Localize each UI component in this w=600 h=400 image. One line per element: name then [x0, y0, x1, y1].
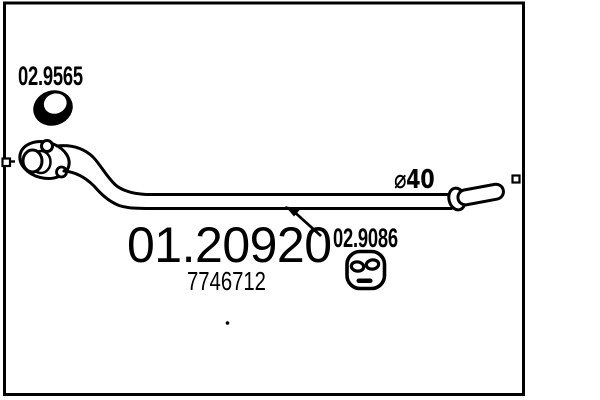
- gasket-part-label: 02.9565: [18, 63, 83, 90]
- pipe-flange-icon: [16, 136, 73, 183]
- catalog-drawing-page: 02.9565 ⌀40 01.20920 7746712 02.9086: [0, 0, 600, 400]
- crop-mark-left: [3, 159, 16, 167]
- exhaust-pipe-technical-drawing: [0, 0, 600, 400]
- exhaust-pipe-icon: [57, 146, 452, 209]
- rubber-mount-icon: [347, 252, 385, 289]
- pipe-diameter-label: ⌀40: [394, 167, 434, 193]
- gasket-ring-icon: [29, 85, 78, 131]
- oe-reference-number: 7746712: [187, 268, 266, 294]
- crop-mark-right: [513, 176, 520, 183]
- main-part-number: 01.20920: [127, 220, 332, 270]
- reference-dot: [226, 321, 230, 325]
- pipe-outlet-tip-icon: [447, 183, 505, 212]
- mount-part-label: 02.9086: [333, 225, 398, 252]
